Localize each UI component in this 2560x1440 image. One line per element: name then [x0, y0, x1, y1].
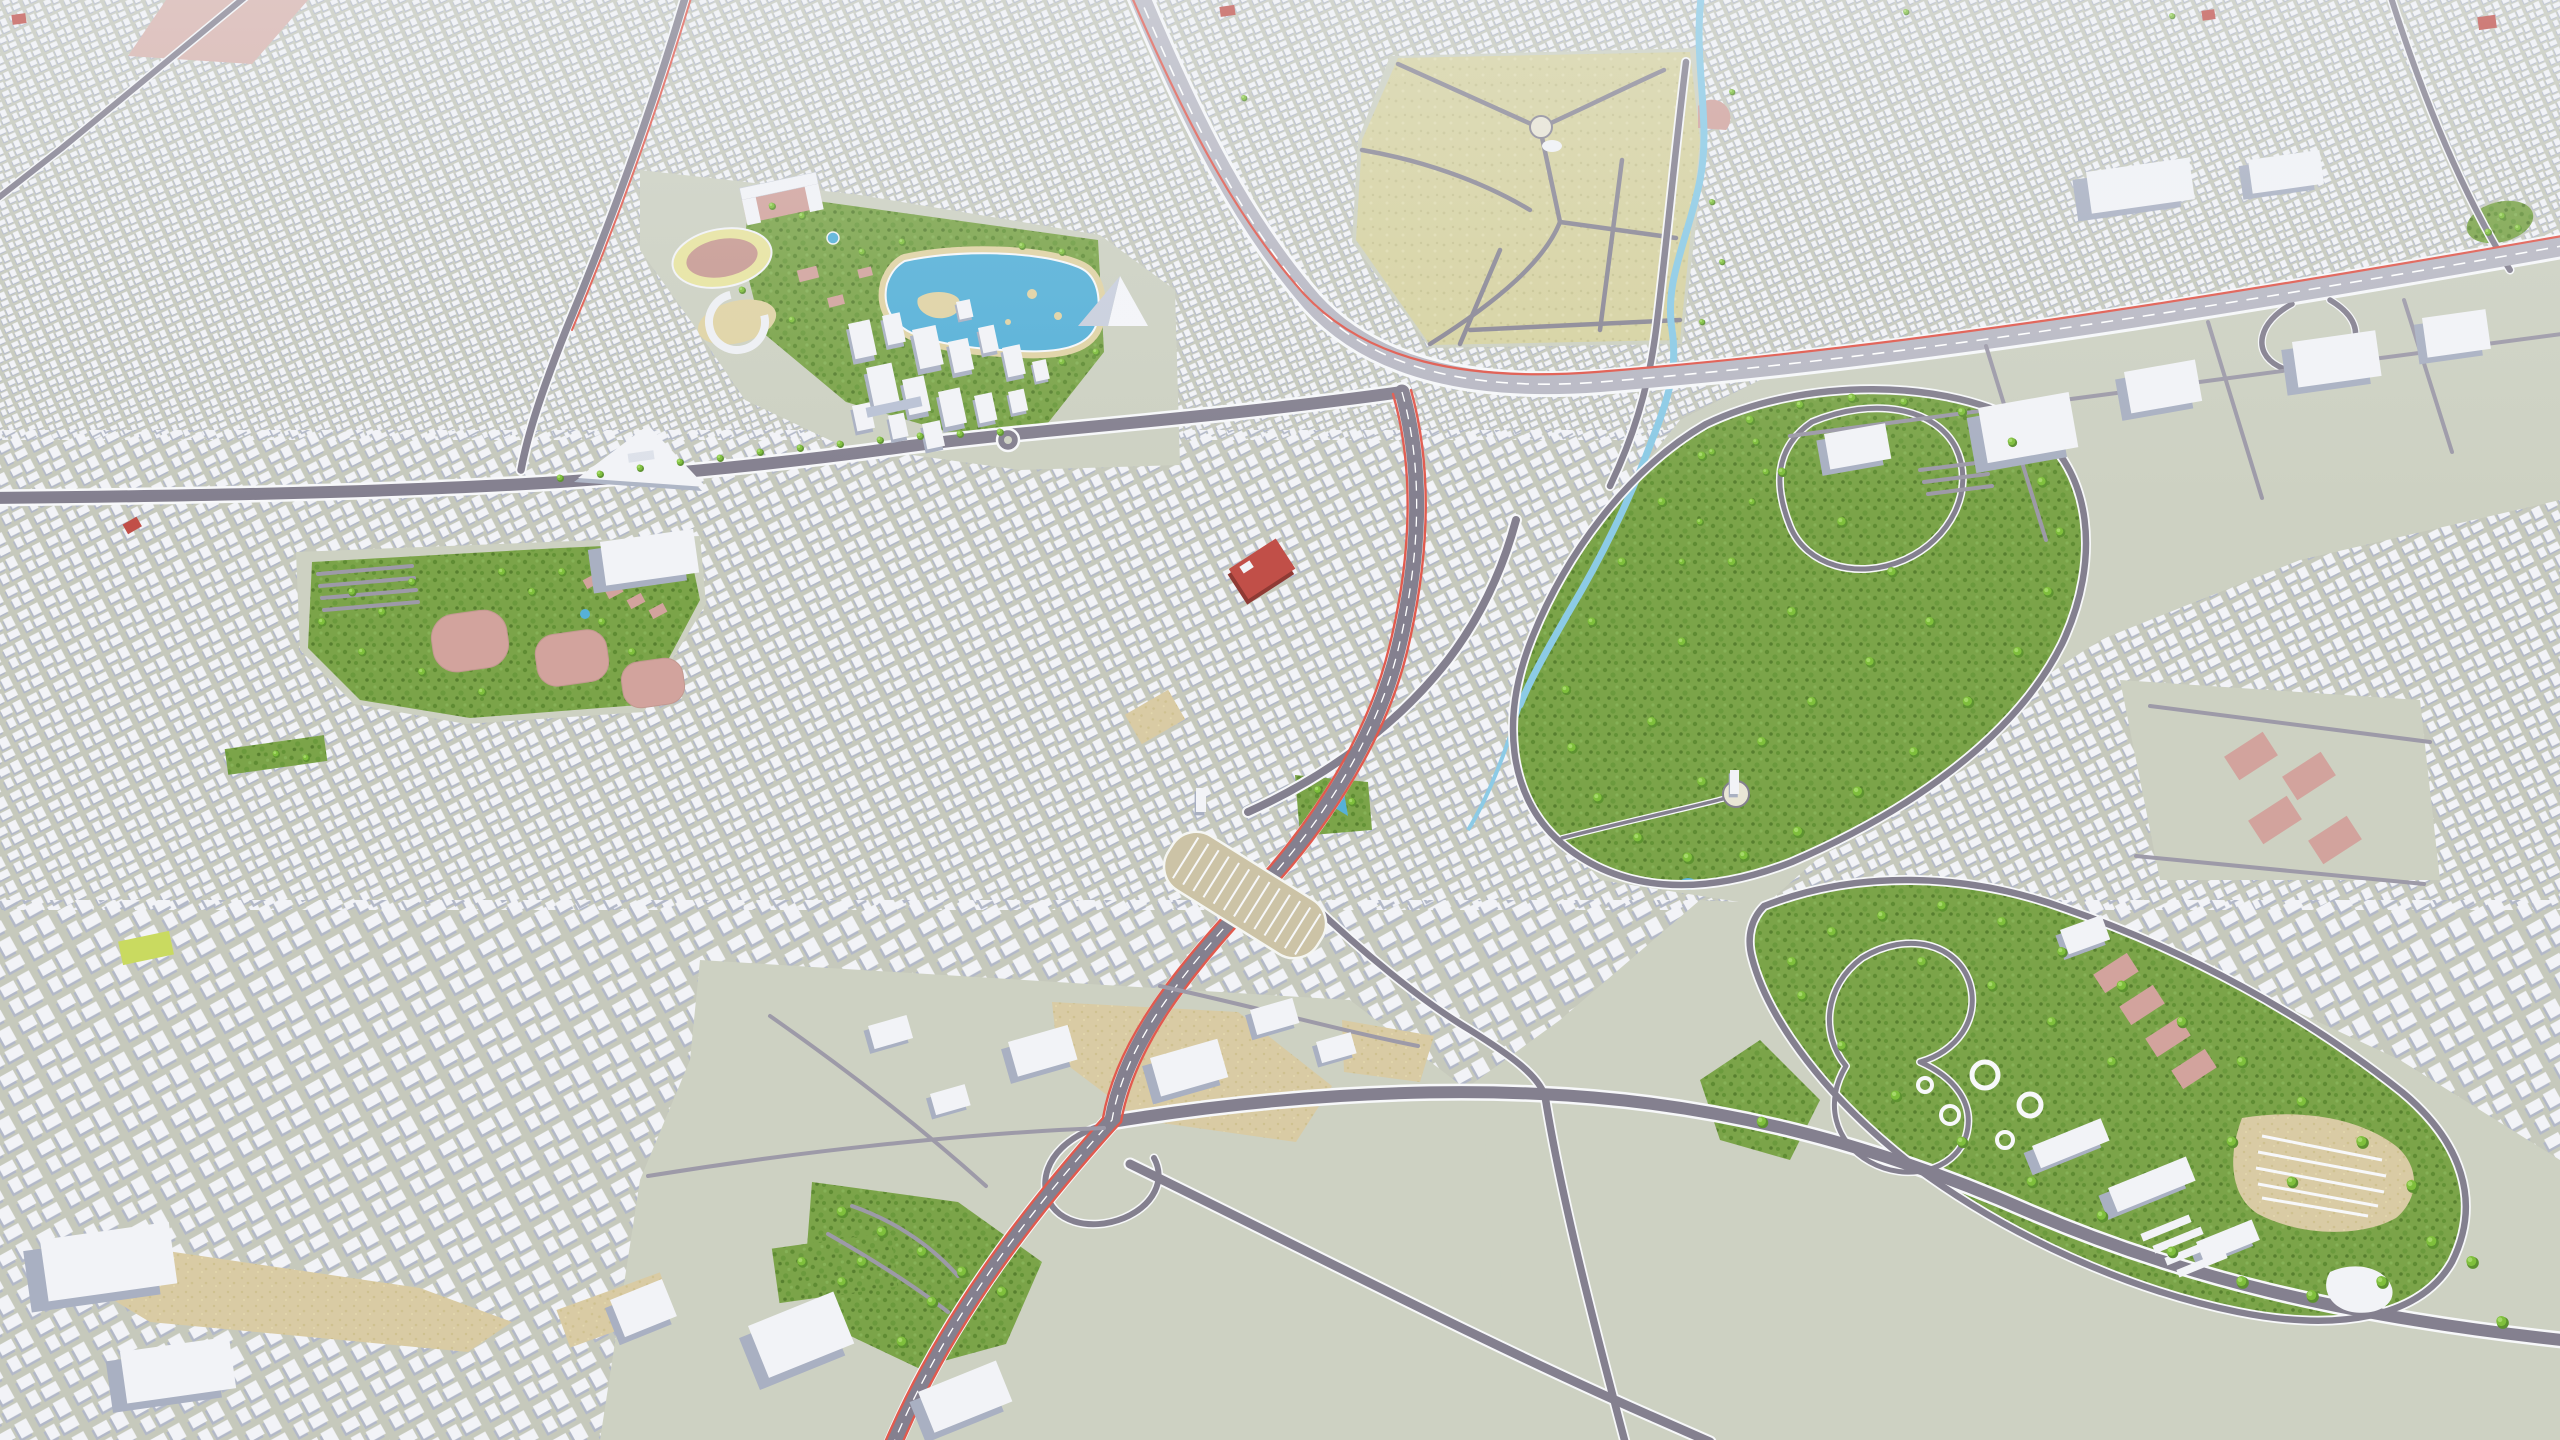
atmosphere-haze — [0, 0, 2560, 1440]
city-map-canvas — [0, 0, 2560, 1440]
city-3d-render — [0, 0, 2560, 1440]
